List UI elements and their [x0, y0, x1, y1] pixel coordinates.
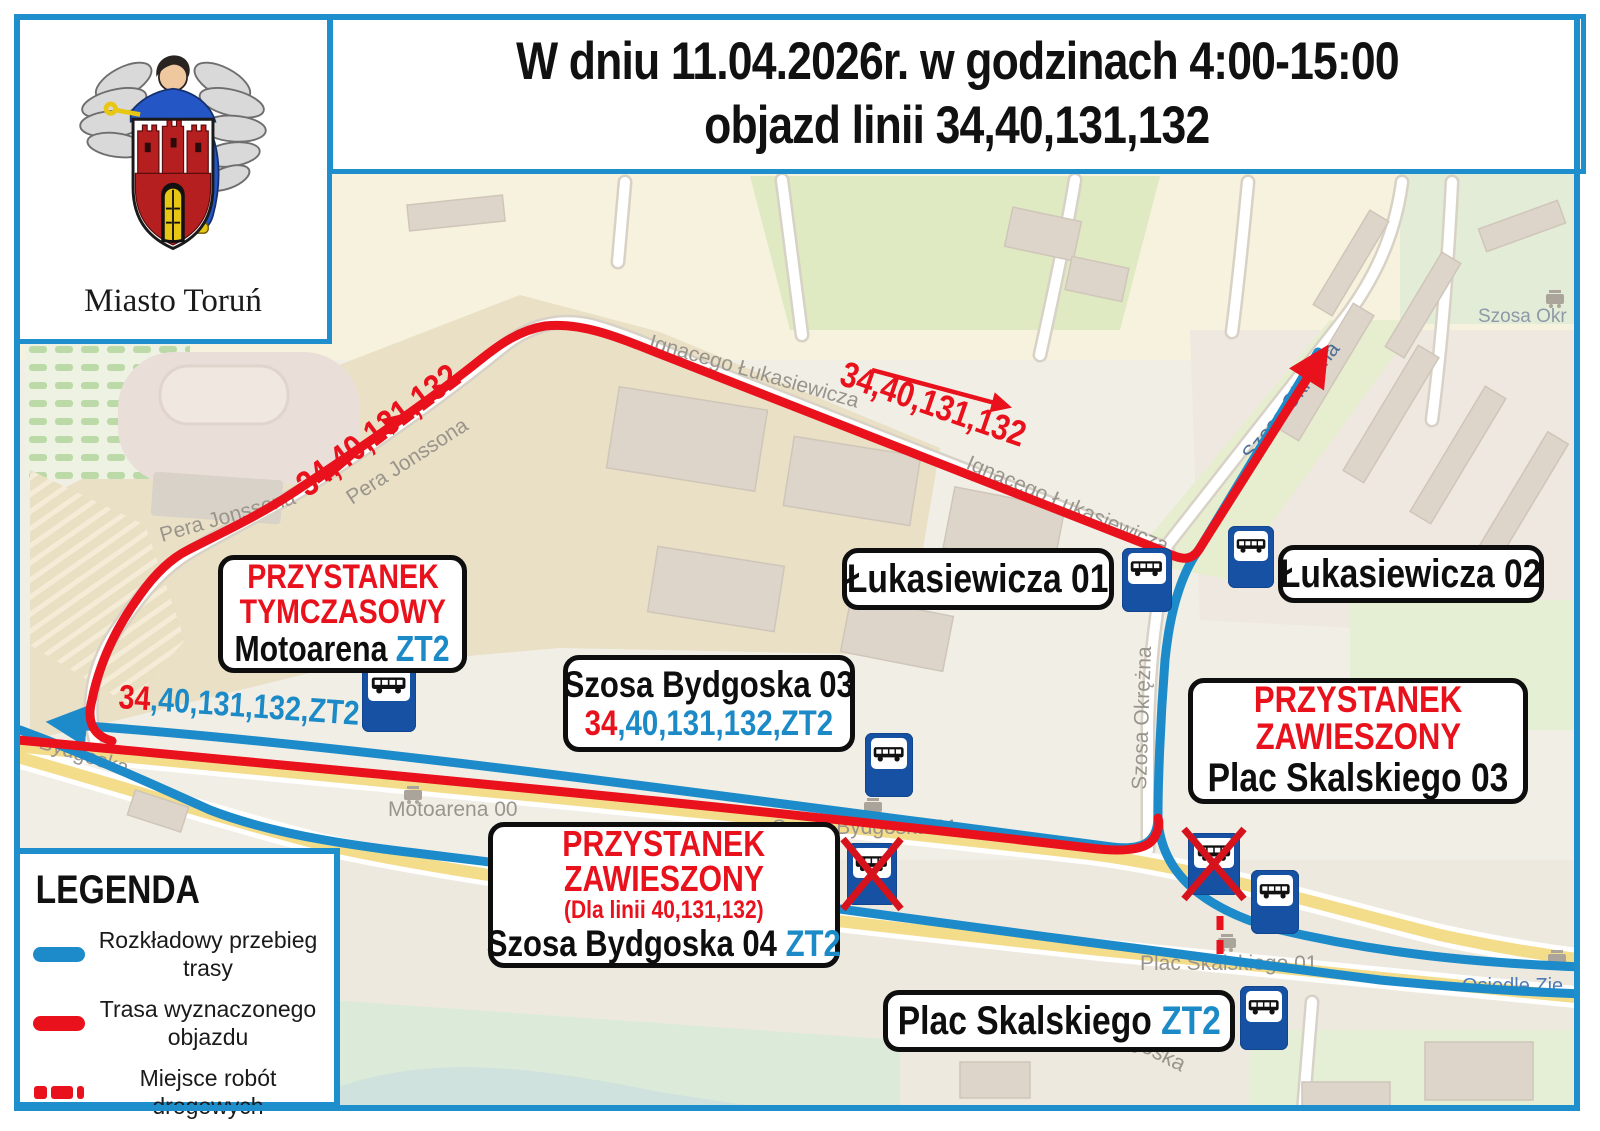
torun-coat-of-arms — [78, 37, 268, 272]
legend-item-scheduled-route: Rozkładowy przebieg trasy — [28, 926, 326, 982]
label-line: ZAWIESZONY — [1255, 718, 1460, 756]
stop-name: Plac Skalskiego 03 — [1208, 756, 1509, 800]
stop-suffix-zt2: ZT2 — [396, 628, 450, 669]
lines-blue: ,40,131,132,ZT2 — [617, 704, 833, 743]
label-line: TYMCZASOWY — [239, 594, 445, 630]
street-szosa-okr-corner: Szosa Okr — [1478, 306, 1567, 327]
title-banner: W dniu 11.04.2026r. w godzinach 4:00-15:… — [328, 14, 1586, 174]
title-line-1: W dniu 11.04.2026r. w godzinach 4:00-15:… — [516, 30, 1399, 94]
label-szosa-bydgoska-03: Szosa Bydgoska 03 34,40,131,132,ZT2 — [563, 655, 855, 752]
crossed-out-icon — [841, 837, 903, 911]
city-name: Miasto Toruń — [19, 283, 327, 320]
legend-label: objazdu — [90, 1023, 326, 1051]
legend-item-detour-route: Trasa wyznaczonego objazdu — [28, 995, 326, 1051]
crossed-out-icon — [1182, 827, 1246, 901]
map-label-motoarena00: Motoarena 00 — [388, 798, 518, 821]
bus-stop-icon-szosa-bydgoska04-crossed — [847, 843, 897, 905]
label-line: PRZYSTANEK — [563, 827, 766, 861]
stop-suffix-zt2: ZT2 — [1161, 999, 1221, 1043]
legend-title: LEGENDA — [36, 868, 200, 913]
stop-name: Szosa Bydgoska 04 — [487, 923, 777, 964]
label-przystanek-tymczasowy: PRZYSTANEK TYMCZASOWY Motoarena ZT2 — [218, 555, 467, 673]
stop-name: Szosa Bydgoska 03 — [564, 665, 854, 705]
bus-icon — [1257, 875, 1293, 906]
label-lukasiewicza-02: Łukasiewicza 02 — [1278, 545, 1544, 603]
annotation-lines-bydgoska-red: 34 — [117, 678, 152, 718]
legend-label: drogowych — [90, 1092, 326, 1120]
legend-label: Miejsce robót — [90, 1064, 326, 1092]
legend-label: trasy — [90, 954, 326, 982]
bus-stop-icon-szosa-bydgoska03 — [865, 733, 913, 797]
bus-icon — [1234, 531, 1269, 561]
label-lukasiewicza-01: Łukasiewicza 01 — [842, 548, 1114, 610]
bus-icon — [1128, 553, 1166, 584]
label-line: ZAWIESZONY — [564, 861, 764, 897]
legend-label: Rozkładowy przebieg — [90, 926, 326, 954]
legend-item-roadworks: Miejsce robót drogowych — [28, 1064, 326, 1120]
bus-stop-icon-plac-skalskiego-zt2 — [1240, 986, 1288, 1050]
lines-red: 34 — [585, 704, 618, 743]
bus-icon — [1246, 991, 1282, 1022]
stop-name: Motoarena — [235, 628, 388, 669]
bus-icon — [871, 738, 907, 769]
label-subtitle: (Dla linii 40,131,132) — [564, 897, 764, 924]
detour-poster: Pera Jonssona Pera Jonssona Ignacego Łuk… — [0, 0, 1600, 1131]
stop-suffix-zt2: ZT2 — [786, 923, 841, 964]
stop-name: Łukasiewicza 02 — [1280, 552, 1541, 597]
bus-stop-icon-lukasiewicza02 — [1228, 526, 1274, 588]
label-line: PRZYSTANEK — [247, 560, 438, 594]
label-przystanek-zawieszony-plac03: PRZYSTANEK ZAWIESZONY Plac Skalskiego 03 — [1188, 678, 1528, 804]
red-dashed-swatch — [28, 1086, 90, 1099]
bus-stop-icon-lukasiewicza01 — [1122, 548, 1172, 612]
label-przystanek-zawieszony-bydgoska04: PRZYSTANEK ZAWIESZONY (Dla linii 40,131,… — [488, 822, 840, 968]
title-line-2: objazd linii 34,40,131,132 — [704, 94, 1209, 158]
legend-label: Trasa wyznaczonego — [90, 995, 326, 1023]
legend-box: LEGENDA Rozkładowy przebieg trasy Trasa … — [14, 848, 340, 1108]
red-line-swatch — [33, 1016, 85, 1031]
blue-line-swatch — [33, 947, 85, 962]
stop-name: Łukasiewicza 01 — [847, 557, 1108, 602]
bus-stop-icon-plac-skalskiego-mid — [1251, 870, 1299, 934]
bus-stop-icon-plac-skalskiego03-crossed — [1188, 833, 1240, 895]
stop-name: Plac Skalskiego — [897, 999, 1151, 1043]
city-logo-box: Miasto Toruń — [14, 14, 332, 344]
label-plac-skalskiego-zt2: Plac Skalskiego ZT2 — [883, 990, 1235, 1052]
label-line: PRZYSTANEK — [1254, 682, 1462, 718]
